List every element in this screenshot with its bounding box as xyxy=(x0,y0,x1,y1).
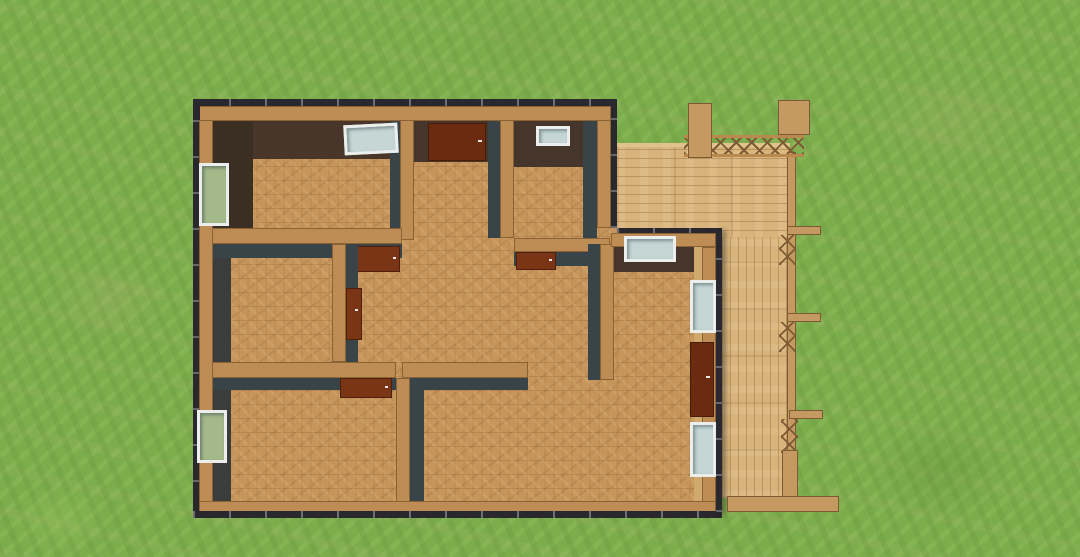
interior-wall-g-face xyxy=(588,244,600,380)
window-topright-north xyxy=(536,126,570,146)
window-topleft-north xyxy=(343,123,398,156)
railing-bracket-1-lattice xyxy=(779,235,796,265)
deck-side xyxy=(722,237,790,498)
interior-wall-a xyxy=(400,120,414,240)
railing-bracket-2-arm xyxy=(787,313,821,322)
interior-wall-g xyxy=(600,244,614,380)
window-east-lower xyxy=(690,422,716,477)
north-wall xyxy=(199,106,611,121)
railing-bracket-3-lattice xyxy=(781,419,798,453)
window-topleft-west xyxy=(199,163,229,226)
deck-step xyxy=(727,496,839,512)
door-east-to-deck xyxy=(690,342,714,417)
interior-wall-b-face xyxy=(488,121,500,238)
entrance-door-north xyxy=(428,123,486,161)
wall-face-middleleft-west xyxy=(213,258,231,362)
interior-wall-c xyxy=(199,228,402,244)
pergola-post-left xyxy=(688,103,712,158)
open-door-wall-e xyxy=(346,288,362,340)
railing-corner-post xyxy=(782,450,798,498)
interior-wall-f-vertical-face xyxy=(410,390,424,502)
railing-bracket-3-arm xyxy=(789,410,823,419)
east-wall-upper-edge xyxy=(611,105,617,228)
window-bottomleft-west xyxy=(197,410,227,463)
annex-east-wall-edge xyxy=(716,228,722,512)
east-wall-upper xyxy=(597,120,611,228)
railing-bracket-1-arm xyxy=(787,226,821,235)
pergola-post-right xyxy=(778,100,810,135)
interior-wall-f-vertical xyxy=(396,378,410,502)
open-door-wall-h xyxy=(516,252,556,270)
interior-wall-d xyxy=(199,362,396,378)
interior-wall-e xyxy=(332,244,346,362)
render-canvas[interactable] xyxy=(0,0,1080,557)
interior-wall-f-horizontal-face xyxy=(402,378,528,390)
south-wall-edge xyxy=(193,511,722,518)
railing-bracket-2-lattice xyxy=(779,322,796,352)
window-east-upper xyxy=(690,280,716,333)
open-door-wall-d xyxy=(340,378,392,398)
interior-wall-f-horizontal xyxy=(402,362,528,378)
deck-upper xyxy=(617,145,790,240)
window-annex-north xyxy=(624,236,676,262)
interior-wall-b xyxy=(500,120,514,238)
wall-face-topright-east xyxy=(583,121,597,238)
